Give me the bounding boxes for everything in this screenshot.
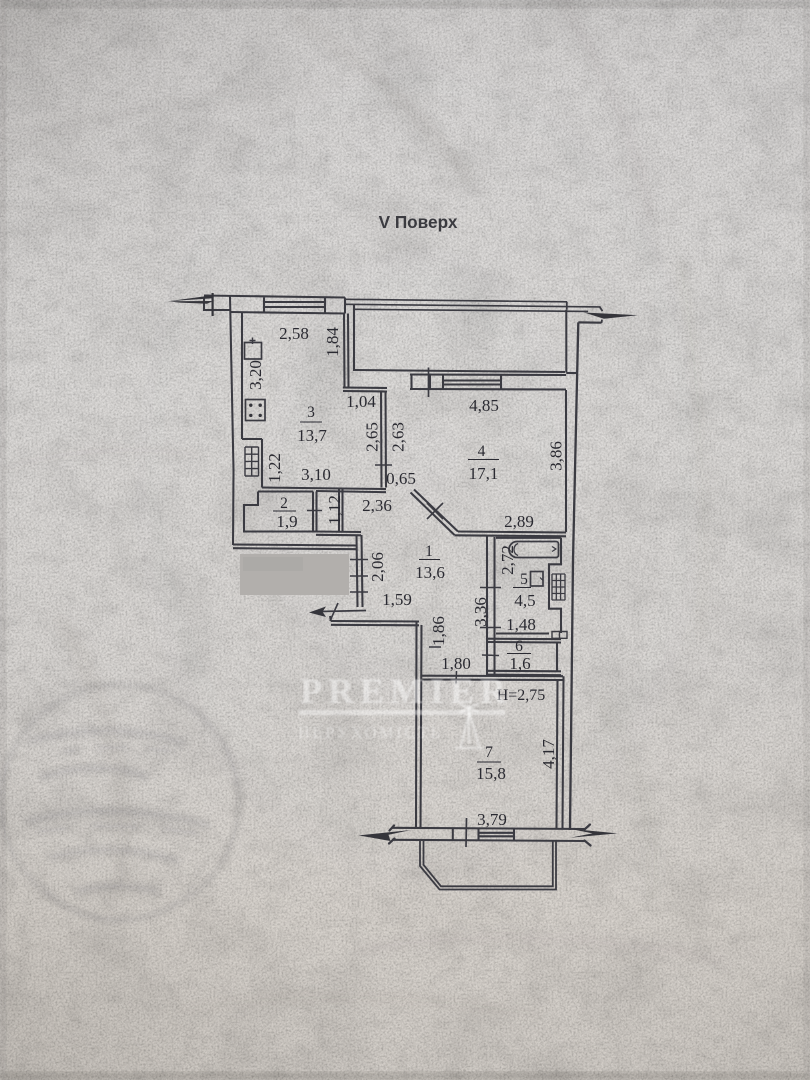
svg-text:3,36: 3,36 — [471, 597, 490, 627]
svg-text:3: 3 — [307, 404, 315, 421]
svg-text:1,84: 1,84 — [323, 327, 342, 357]
svg-text:1,48: 1,48 — [506, 615, 536, 634]
svg-text:15,8: 15,8 — [476, 764, 506, 783]
svg-text:4,17: 4,17 — [539, 739, 558, 769]
svg-text:2,89: 2,89 — [504, 512, 534, 531]
svg-text:V Поверх: V Поверх — [379, 212, 458, 232]
svg-text:2,06: 2,06 — [368, 552, 387, 582]
svg-text:0,65: 0,65 — [386, 469, 416, 488]
svg-text:2,58: 2,58 — [279, 324, 309, 343]
svg-text:2,72: 2,72 — [498, 545, 517, 575]
svg-text:17,1: 17,1 — [469, 464, 499, 483]
svg-text:1,59: 1,59 — [382, 590, 412, 609]
svg-text:1,12: 1,12 — [325, 495, 344, 525]
svg-text:1,04: 1,04 — [346, 392, 376, 411]
svg-text:5: 5 — [520, 571, 528, 588]
svg-text:3,86: 3,86 — [547, 441, 566, 471]
svg-text:2,63: 2,63 — [389, 422, 408, 452]
svg-text:1,86: 1,86 — [429, 616, 448, 646]
svg-text:4,5: 4,5 — [514, 591, 535, 610]
svg-text:4: 4 — [478, 443, 486, 460]
svg-text:6: 6 — [515, 638, 523, 655]
svg-text:1,22: 1,22 — [265, 453, 284, 483]
svg-text:4,85: 4,85 — [469, 396, 499, 415]
svg-text:1,6: 1,6 — [509, 654, 530, 673]
svg-text:2: 2 — [280, 495, 288, 512]
svg-text:13,6: 13,6 — [415, 563, 445, 582]
svg-text:3,10: 3,10 — [301, 465, 331, 484]
svg-text:1,9: 1,9 — [276, 512, 297, 531]
svg-text:1: 1 — [425, 543, 433, 560]
svg-text:3,20: 3,20 — [246, 360, 265, 390]
svg-text:НЕРУХОМІСТЬ: НЕРУХОМІСТЬ — [298, 723, 443, 742]
svg-text:7: 7 — [485, 744, 493, 761]
svg-text:PREMIER: PREMIER — [300, 671, 512, 711]
svg-text:2,36: 2,36 — [362, 496, 392, 515]
svg-text:2,65: 2,65 — [363, 422, 382, 452]
svg-text:3,79: 3,79 — [477, 810, 507, 829]
svg-text:13,7: 13,7 — [297, 426, 327, 445]
